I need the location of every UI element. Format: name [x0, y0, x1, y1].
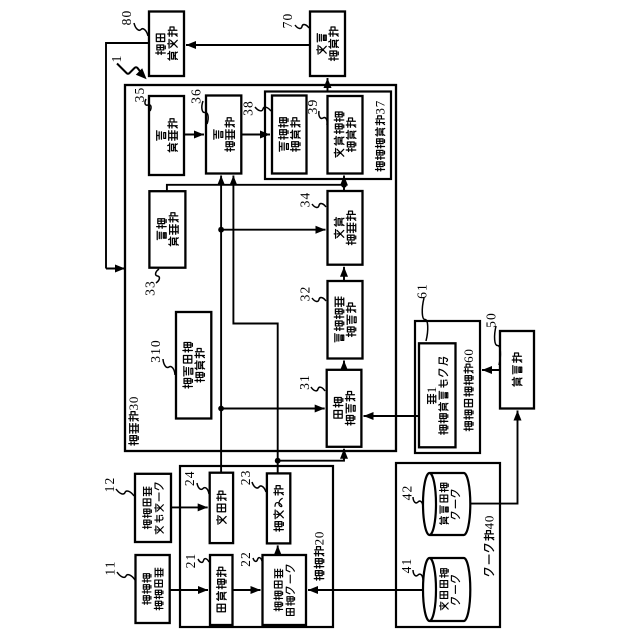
svg-text:39: 39	[305, 99, 320, 115]
svg-text:11: 11	[103, 560, 118, 575]
svg-text:31: 31	[297, 374, 312, 390]
svg-text:20: 20	[312, 531, 327, 546]
svg-text:1: 1	[424, 386, 439, 393]
svg-text:24: 24	[182, 470, 197, 486]
svg-text:38: 38	[241, 100, 256, 116]
svg-text:70: 70	[280, 13, 295, 29]
svg-text:42: 42	[400, 485, 415, 501]
svg-text:23: 23	[238, 470, 253, 486]
svg-text:1: 1	[110, 56, 125, 63]
svg-text:34: 34	[298, 192, 313, 208]
svg-text:61: 61	[415, 283, 430, 299]
svg-text:50: 50	[484, 312, 499, 328]
svg-text:310: 310	[148, 339, 163, 363]
svg-text:12: 12	[102, 477, 117, 493]
svg-text:41: 41	[399, 558, 414, 574]
svg-text:30: 30	[126, 396, 141, 411]
svg-text:37: 37	[373, 100, 388, 115]
svg-text:33: 33	[143, 280, 158, 296]
svg-text:36: 36	[189, 88, 204, 104]
svg-text:60: 60	[461, 348, 476, 363]
svg-text:80: 80	[119, 10, 134, 26]
svg-text:21: 21	[183, 553, 198, 569]
svg-text:22: 22	[238, 551, 253, 567]
svg-text:32: 32	[298, 286, 313, 302]
svg-text:40: 40	[482, 515, 497, 530]
